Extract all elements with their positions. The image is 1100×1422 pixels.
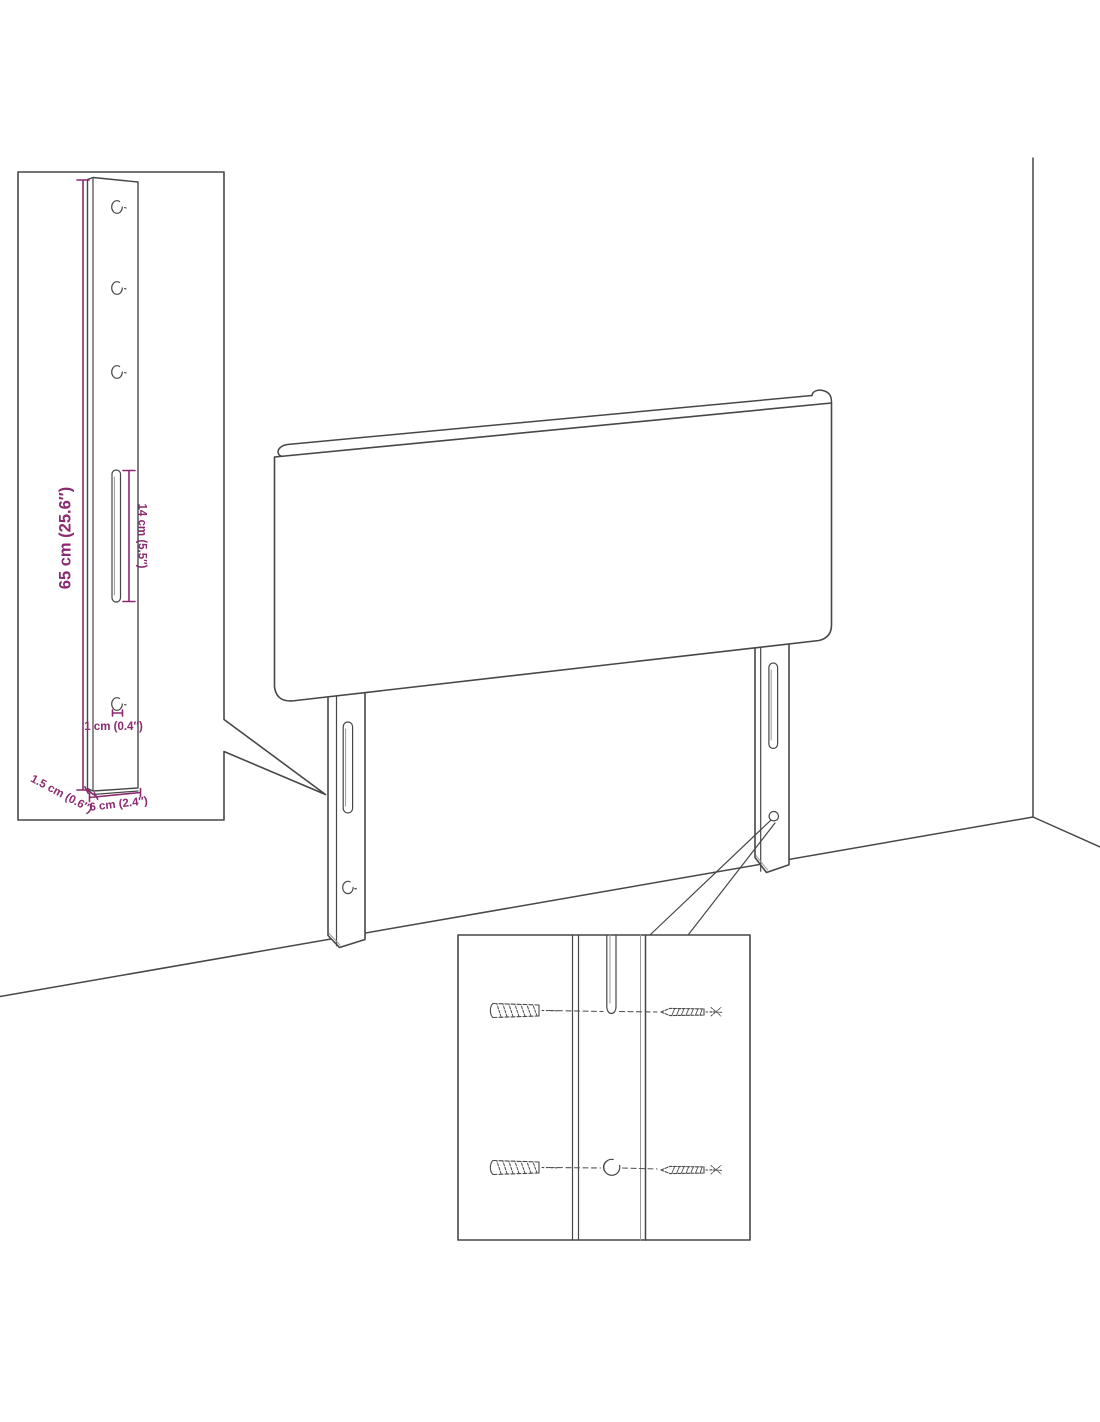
dimension-height-label: 65 cm (25.6″)	[57, 487, 75, 589]
bracket-body	[88, 178, 139, 792]
leg-right-body	[755, 610, 789, 873]
assembly-diagram: 65 cm (25.6″) 14 cm (5.5″) 1 cm (0.4″) 6…	[0, 0, 1100, 1422]
dimension-hole-label: 1 cm (0.4″)	[84, 721, 143, 733]
dimension-slot-label: 14 cm (5.5″)	[136, 504, 148, 569]
headboard-top-lip-right-curl	[812, 390, 832, 402]
headboard-leg-right	[755, 610, 789, 873]
screw-detail-frame	[458, 935, 750, 1240]
headboard-front-face	[275, 403, 832, 701]
floor-line-right	[1033, 817, 1100, 847]
headboard-panel	[275, 390, 832, 701]
assembly-diagram-page: 65 cm (25.6″) 14 cm (5.5″) 1 cm (0.4″) 6…	[0, 0, 1100, 1422]
inset-screw-detail	[458, 935, 750, 1240]
